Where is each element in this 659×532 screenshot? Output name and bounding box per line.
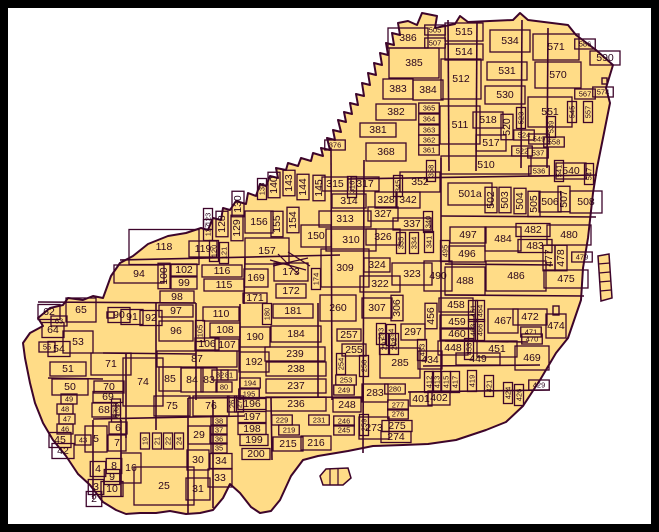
- parcel-label: 483: [526, 240, 544, 252]
- parcel-label: 254: [337, 358, 346, 371]
- parcel-label: 352: [411, 176, 429, 188]
- parcel-label: 257: [340, 329, 358, 341]
- parcel-label: 34: [215, 455, 227, 467]
- parcel-label: 322: [371, 278, 389, 290]
- parcel-label: 384: [419, 84, 437, 96]
- parcel-label: 280: [389, 385, 402, 394]
- parcel-label: 97: [170, 305, 182, 317]
- parcel-label: 421: [485, 380, 494, 393]
- parcel-label: 424: [504, 387, 513, 400]
- parcel-label: 2: [91, 493, 97, 505]
- parcel-label: 184: [287, 328, 305, 340]
- parcel-label: 255: [345, 344, 363, 356]
- parcel-label: 363: [423, 126, 436, 135]
- parcel-label: 145: [313, 179, 325, 197]
- parcel-label: 523: [517, 112, 526, 125]
- parcel-label: 107: [218, 339, 236, 351]
- parcel-label: 345: [394, 180, 403, 193]
- parcel-label: 96: [170, 325, 182, 337]
- parcel-label: 512: [452, 73, 470, 85]
- parcel-label: 545: [568, 106, 577, 119]
- parcel-label: 7: [114, 437, 120, 449]
- parcel-label: 382: [387, 106, 405, 118]
- parcel-label: 154: [287, 211, 299, 229]
- parcel-label: 317: [356, 178, 374, 190]
- parcel-label: 24: [175, 437, 184, 445]
- parcel-label: 48: [61, 405, 69, 414]
- parcel-label: 570: [549, 69, 567, 81]
- parcel-label: 474: [547, 320, 565, 332]
- parcel-label: 505: [528, 195, 540, 213]
- parcel-label: 386: [399, 32, 417, 44]
- parcel-label: 501a: [458, 188, 482, 200]
- parcel-label: 36: [215, 435, 223, 444]
- parcel-label: 216: [307, 437, 325, 449]
- parcel-label: 169: [247, 272, 265, 284]
- parcel-label: 51: [62, 363, 74, 375]
- parcel-label: 415: [442, 376, 451, 389]
- parcel-label: 98: [171, 291, 183, 303]
- parcel-label: 273: [365, 422, 383, 434]
- parcel-label: 92: [145, 312, 157, 324]
- parcel-label: 180: [263, 308, 272, 321]
- parcel-label: 510: [477, 159, 495, 171]
- parcel-map[interactable]: 3865055075155145345715865903855125315703…: [8, 8, 659, 532]
- parcel-label: 194: [244, 379, 257, 388]
- parcel-label: 541: [555, 165, 564, 178]
- parcel-label: 174: [312, 273, 321, 286]
- parcel-label: 127: [204, 224, 213, 237]
- parcel-label: 65: [75, 304, 87, 316]
- parcel-label: 16: [125, 462, 137, 474]
- parcel-label: 496: [458, 248, 476, 260]
- parcel-label: 574: [597, 88, 610, 97]
- parcel-label: 362: [423, 136, 436, 145]
- parcel-label: 38: [215, 417, 223, 426]
- parcel-label: 503: [499, 191, 511, 209]
- parcel-label: 365: [423, 104, 436, 113]
- parcel-label: 157: [258, 245, 276, 257]
- parcel-label: 323: [403, 268, 421, 280]
- parcel-label: 25: [158, 480, 170, 492]
- parcel-label: 514: [455, 46, 473, 58]
- parcel-label: 128: [216, 215, 228, 233]
- parcel-label: 27: [235, 400, 244, 408]
- parcel-label: 448: [444, 342, 462, 354]
- parcel-label: 531: [498, 65, 516, 77]
- parcel-label: 35: [215, 444, 223, 453]
- parcel-label: 155: [271, 215, 283, 233]
- parcel-label: 171: [246, 292, 264, 304]
- parcel-label: 586: [579, 40, 592, 49]
- parcel-label: 115: [216, 279, 233, 291]
- parcel-label: 495: [441, 245, 450, 258]
- parcel-label: 31: [192, 483, 204, 495]
- parcel-label: 539: [547, 121, 556, 134]
- parcel-label: 297: [404, 326, 422, 338]
- parcel-label: 402: [430, 392, 448, 404]
- parcel-label: 534: [501, 35, 519, 47]
- parcel-label: 106: [198, 338, 216, 350]
- parcel-label: 464: [476, 305, 485, 318]
- parcel-label: 306: [391, 299, 403, 317]
- parcel-label: 130: [232, 195, 244, 213]
- street-line: [441, 216, 596, 217]
- parcel-label: 283: [366, 387, 384, 399]
- parcel-label: 530: [496, 89, 514, 101]
- parcel-label: 368: [377, 146, 395, 158]
- parcel-label: 110: [213, 308, 230, 320]
- parcel-label: 488: [456, 275, 474, 287]
- parcel-label: 200: [247, 448, 265, 460]
- parcel-label: 537: [532, 149, 545, 158]
- parcel-label: 150: [307, 230, 325, 242]
- parcel-label: 277: [392, 401, 405, 410]
- parcel-label: 6: [115, 422, 121, 434]
- island: [598, 254, 612, 301]
- parcel-label: 472: [521, 311, 539, 323]
- parcel-label: 507: [429, 39, 442, 48]
- parcel-label: 522: [516, 147, 529, 156]
- parcel-label: 30: [192, 454, 204, 466]
- parcel-label: 361: [423, 146, 436, 155]
- parcel-label: 90: [113, 309, 125, 321]
- parcel-label: 449: [469, 353, 487, 365]
- parcel-label: 67: [112, 410, 121, 418]
- parcel-label: 64: [47, 324, 59, 336]
- parcel-label: 337: [403, 218, 421, 230]
- parcel-label: 120: [210, 245, 219, 258]
- parcel-label: 459: [448, 316, 466, 328]
- parcel-label: 413: [433, 376, 442, 389]
- parcel-label: 49: [65, 395, 73, 404]
- street-line: [445, 264, 553, 265]
- parcel-label: 144: [297, 178, 309, 196]
- parcel-label: 456: [425, 307, 437, 325]
- parcel-label: 74: [137, 376, 149, 388]
- parcel-label: 558: [548, 138, 561, 147]
- parcel-label: 71: [105, 358, 117, 370]
- parcel-label: 75: [166, 400, 178, 412]
- parcel-label: 237: [287, 380, 305, 392]
- parcel-label: 517: [482, 137, 500, 149]
- parcel-label: 197: [243, 411, 261, 423]
- parcel-label: 590: [596, 52, 614, 64]
- parcel-label: 140: [268, 176, 280, 194]
- parcel-label: 507: [558, 190, 570, 208]
- parcel-label: 85: [164, 373, 176, 385]
- parcel-label: 328: [377, 194, 395, 206]
- parcel-label: 419: [468, 375, 477, 388]
- parcel-label: 21: [153, 437, 162, 445]
- parcel-label: 401: [412, 393, 430, 405]
- parcel-label: 567: [579, 90, 592, 99]
- parcel-label: 68: [98, 404, 110, 416]
- parcel-label: 502: [485, 191, 497, 209]
- parcel-label: 342: [399, 194, 417, 206]
- parcel-label: 10: [106, 483, 118, 495]
- parcel-label: 82: [216, 371, 224, 380]
- parcel-label: 376: [329, 141, 342, 150]
- parcel-label: 326: [374, 231, 392, 243]
- parcel-label: 381: [369, 124, 387, 136]
- parcel-label: 192: [245, 356, 263, 368]
- parcel-label: 274: [387, 431, 405, 443]
- parcel-label: 327: [374, 208, 392, 220]
- parcel-label: 557: [584, 106, 593, 119]
- parcel-label: 520: [501, 118, 513, 136]
- parcel-label: 307: [368, 302, 386, 314]
- parcel-label: 81: [225, 371, 233, 380]
- parcel-label: 458: [447, 299, 465, 311]
- parcel-label: 181: [284, 305, 302, 317]
- parcel-label: 310: [342, 234, 360, 246]
- parcel-label: 116: [214, 265, 231, 277]
- parcel-label: 478: [555, 249, 567, 267]
- parcel-label: 276: [392, 410, 405, 419]
- parcel-label: 253: [340, 376, 353, 385]
- parcel-label: 199: [245, 434, 263, 446]
- parcel-label: 69: [102, 391, 114, 403]
- parcel-label: 341: [425, 236, 434, 249]
- parcel-label: 37: [215, 426, 223, 435]
- parcel-label: 506: [541, 196, 559, 208]
- parcel-label: 245: [338, 426, 351, 435]
- parcel-label: 497: [459, 229, 477, 241]
- parcel-label: 511: [452, 119, 469, 131]
- parcel-label: 172: [282, 285, 300, 297]
- parcel-label: 196: [243, 398, 261, 410]
- parcel-label: 22: [164, 437, 173, 445]
- parcel-label: 475: [557, 273, 575, 285]
- parcel-label: 334: [410, 237, 419, 250]
- parcel-label: 94: [133, 268, 145, 280]
- parcel-label: 43: [79, 436, 87, 445]
- parcel-label: 87: [191, 353, 203, 365]
- parcel-label: 47: [63, 415, 71, 424]
- parcel-label: 118: [156, 241, 173, 253]
- parcel-label: 571: [547, 41, 565, 53]
- parcel-label: 231: [313, 416, 326, 425]
- parcel-label: 285: [391, 357, 409, 369]
- parcel-label: 121: [220, 247, 229, 260]
- parcel-label: 426: [515, 389, 524, 402]
- parcel-label: 540: [562, 165, 580, 177]
- parcel-label: 236: [287, 398, 305, 410]
- parcel-label: 33: [214, 472, 226, 484]
- parcel-label: 260: [329, 302, 347, 314]
- parcel-label: 19: [141, 437, 150, 445]
- parcel-label: 313: [336, 213, 354, 225]
- parcel-label: 239: [286, 348, 304, 360]
- parcel-label: 80: [220, 383, 228, 392]
- parcel-label: 340: [424, 216, 433, 229]
- parcel-label: 469: [523, 352, 541, 364]
- parcel-label: 518: [479, 114, 497, 126]
- parcel-label: 246: [338, 417, 351, 426]
- parcel-label: 53: [72, 336, 84, 348]
- parcel-label: 486: [507, 270, 525, 282]
- parcel-label: 42: [57, 445, 69, 457]
- parcel-label: 309: [336, 262, 354, 274]
- parcel-label: 536: [533, 167, 546, 176]
- parcel-label: 515: [455, 26, 473, 38]
- parcel-label: 54: [53, 343, 65, 355]
- parcel-label: 108: [216, 324, 234, 336]
- parcel-label: 229: [276, 416, 289, 425]
- parcel-label: 335: [397, 237, 406, 250]
- parcel-label: 417: [451, 376, 460, 389]
- parcel-label: 215: [279, 438, 297, 450]
- parcel-label: 102: [175, 264, 193, 276]
- parcel-label: 50: [64, 381, 76, 393]
- parcel-label: 249: [338, 386, 351, 395]
- parcel-label: 383: [389, 83, 407, 95]
- parcel-label: 219: [283, 426, 296, 435]
- parcel-label: 385: [405, 57, 423, 69]
- parcel-label: 314: [340, 195, 358, 207]
- parcel-label: 105: [196, 325, 205, 338]
- parcel-label: 429: [533, 381, 546, 390]
- parcel-label: 470: [526, 335, 539, 344]
- map-frame: 3865055075155145345715865903855125315703…: [0, 0, 659, 532]
- parcel-label: 315: [326, 178, 344, 190]
- parcel-label: 479: [576, 253, 589, 262]
- parcel-label: 248: [338, 399, 356, 411]
- parcel-label: 482: [524, 224, 542, 236]
- parcel-label: 433: [418, 344, 427, 357]
- parcel-label: 238: [287, 363, 305, 375]
- parcel-label: 190: [246, 331, 264, 343]
- parcel-label: 76: [205, 400, 217, 412]
- parcel-label: 4: [95, 463, 101, 475]
- parcel-label: 364: [423, 115, 436, 124]
- parcel-label: 467: [494, 315, 512, 327]
- parcel-label: 504: [514, 192, 526, 210]
- parcel-label: 84: [186, 374, 198, 386]
- parcel-label: 505: [429, 26, 442, 35]
- parcel-label: 480: [560, 229, 578, 241]
- parcel-label: 55: [43, 343, 51, 352]
- parcel-label: 466: [476, 324, 485, 337]
- parcel-label: 156: [250, 216, 268, 228]
- parcel-label: 138: [258, 183, 267, 196]
- parcel-label: 460: [448, 328, 466, 340]
- parcel-label: 547: [585, 168, 594, 181]
- parcel-label: 258: [360, 360, 369, 373]
- parcel-label: 29: [193, 429, 205, 441]
- parcel-label: 91: [126, 311, 138, 323]
- parcel-label: 143: [283, 174, 295, 192]
- parcel-label: 484: [494, 233, 512, 245]
- street-line: [271, 398, 272, 460]
- parcel-label: 5: [93, 433, 99, 445]
- parcel-label: 129: [231, 219, 243, 237]
- parcel-label: 477: [543, 249, 555, 267]
- parcel-label: 99: [178, 277, 190, 289]
- street-line: [363, 160, 364, 453]
- island: [320, 468, 351, 485]
- street-line: [448, 20, 449, 171]
- parcel-label: 508: [577, 196, 595, 208]
- parcel-label: 324: [368, 259, 386, 271]
